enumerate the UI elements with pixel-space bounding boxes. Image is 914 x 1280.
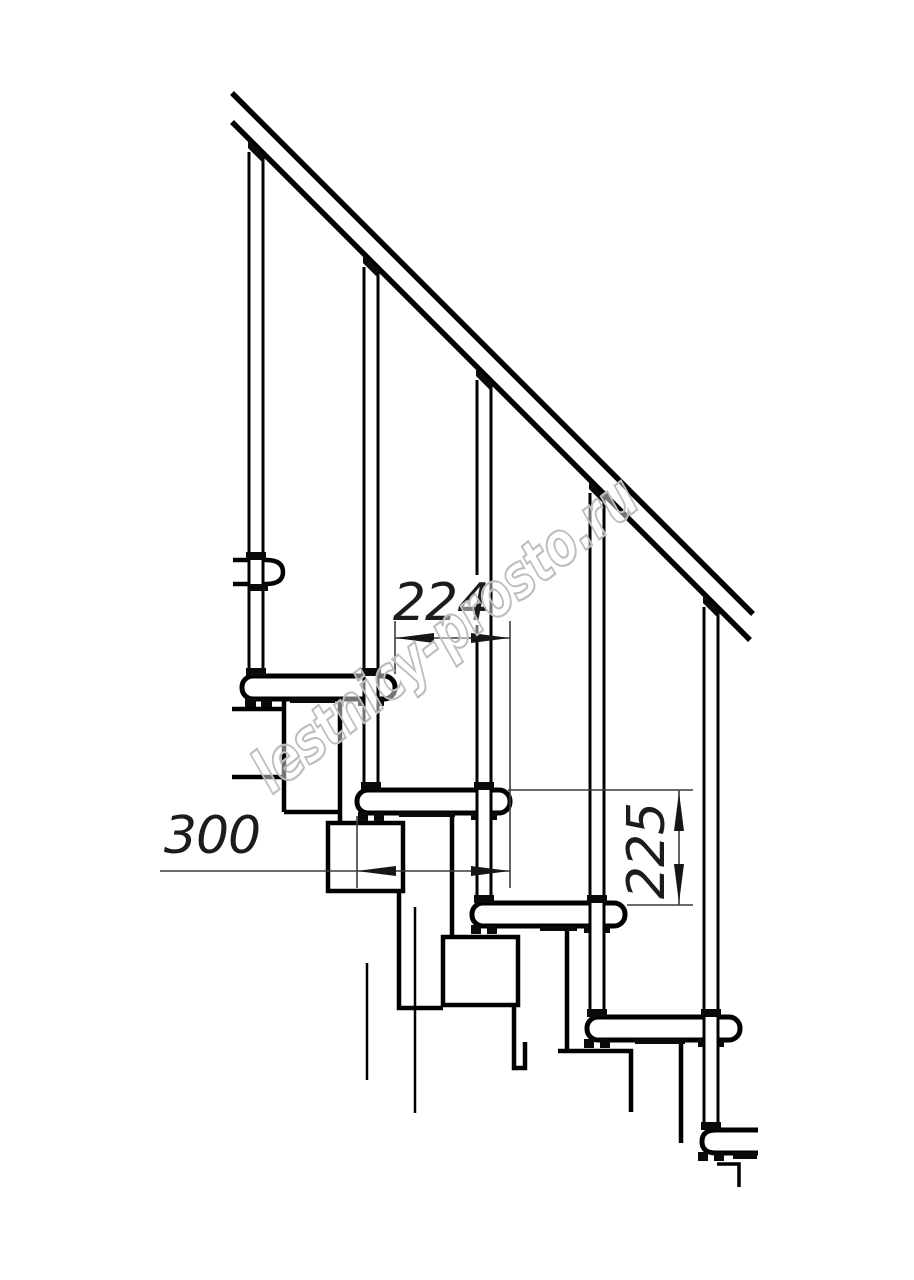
dimension-label-depth: 300	[164, 806, 260, 866]
baluster-5	[704, 607, 718, 1130]
baluster-4	[590, 493, 604, 1017]
dimension-label-riser: 225	[617, 803, 677, 899]
module-chain	[284, 700, 739, 1187]
staircase-side-view-drawing: 224 300 225 lestnicy-prosto.ru	[0, 0, 914, 1280]
cut-step-line	[717, 1164, 739, 1187]
module-block	[328, 823, 403, 891]
tread-5	[702, 1130, 758, 1153]
baluster-1	[249, 152, 263, 676]
module-block	[443, 937, 518, 1005]
technical-drawing-page: 224 300 225 lestnicy-prosto.ru	[0, 0, 914, 1280]
